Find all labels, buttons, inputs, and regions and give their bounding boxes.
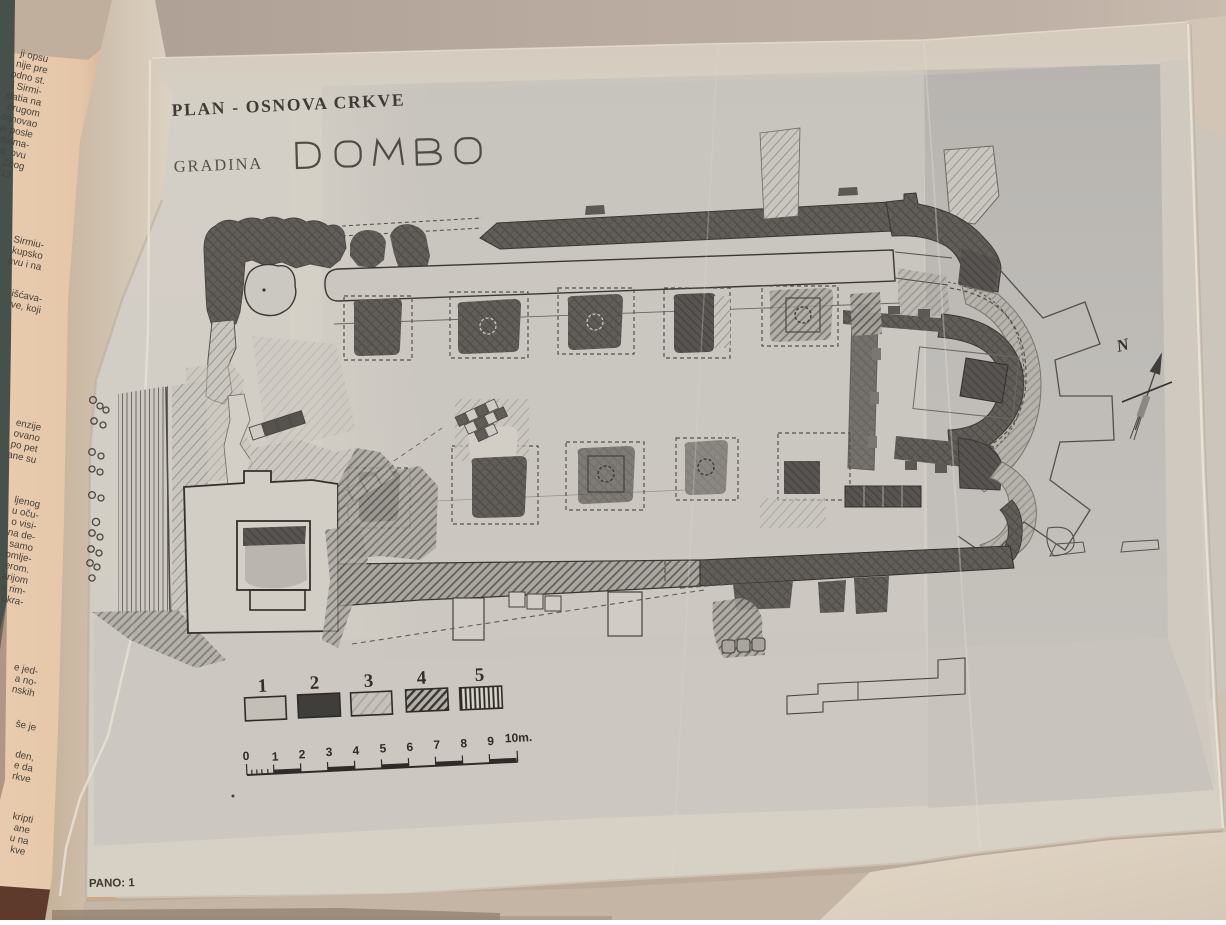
svg-text:1: 1 [271,749,279,763]
svg-text:2: 2 [309,673,319,694]
svg-text:3: 3 [325,745,333,759]
svg-text:6: 6 [406,740,414,754]
svg-text:0: 0 [242,749,250,763]
svg-text:7: 7 [433,738,441,752]
svg-text:5: 5 [474,665,484,686]
svg-text:8: 8 [460,736,468,750]
svg-text:5: 5 [379,741,387,755]
svg-text:4: 4 [352,743,360,757]
svg-text:2: 2 [298,747,306,761]
svg-text:10m.: 10m. [504,730,532,745]
svg-text:4: 4 [416,668,427,689]
svg-text:9: 9 [487,734,495,748]
svg-text:PANO: 1: PANO: 1 [89,877,136,890]
svg-text:1: 1 [257,676,267,697]
svg-text:3: 3 [363,671,373,692]
svg-text:GRADINA: GRADINA [173,154,263,176]
